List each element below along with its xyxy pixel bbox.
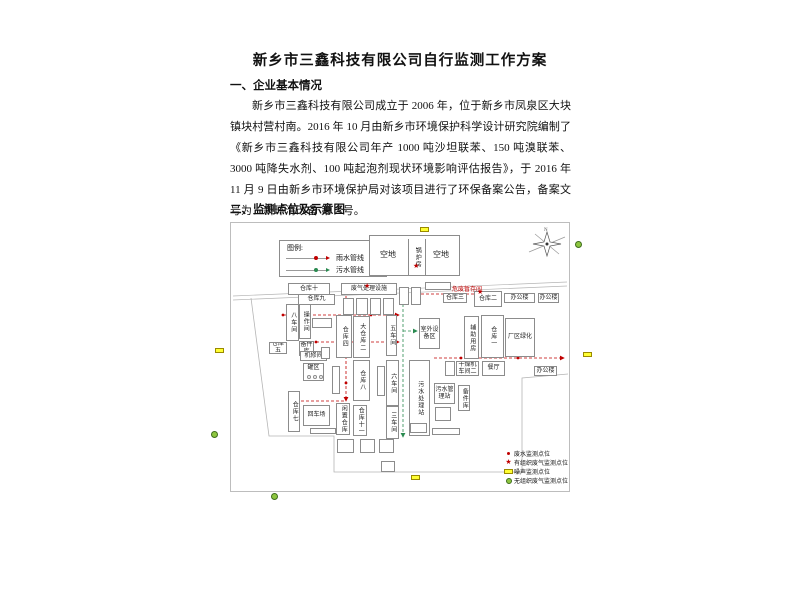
building-canteen: 餐厅 [482, 361, 505, 376]
building-outdoor-equipment-area: 室外设备区 [419, 318, 440, 349]
building-cangku-3: 仓库三 [443, 293, 467, 303]
small-building [432, 428, 460, 435]
fugitive-gas-circle-icon [503, 478, 514, 484]
factory-greening-area: 厂区绿化 [505, 318, 535, 357]
building-idle-warehouse: 闲置仓库 [336, 403, 350, 435]
building-cangku-8: 仓库八 [353, 360, 370, 401]
organized-gas-marker-boiler: ★ [413, 263, 419, 270]
organized-gas-marker-waste-gas: ★ [364, 283, 370, 290]
marker-legend-row-organized-gas: ★ 有组织废气监测点位 [503, 458, 573, 467]
building-office-1: 办公楼 [504, 293, 535, 303]
organized-gas-marker-hazwaste: ★ [477, 289, 483, 296]
rain-line-sample [286, 258, 326, 259]
small-building [310, 428, 336, 434]
building-cangku-7: 仓库七 [288, 391, 300, 432]
section1-heading: 一、企业基本情况 [230, 77, 322, 93]
small-building [410, 423, 427, 433]
building-tank-area: 罐区 [303, 363, 324, 381]
small-building [425, 282, 451, 290]
marker-legend-row-noise: 噪声监测点位 [503, 467, 573, 476]
sewage-line-label: 污水管线 [336, 265, 364, 275]
small-building [360, 439, 375, 453]
building-cangku-5: 仓库五 [269, 342, 287, 354]
small-building [370, 298, 381, 315]
marker-legend-row-fugitive-gas: 无组织废气监测点位 [503, 476, 573, 485]
sewage-pipeline-legend-row: 污水管线 [286, 266, 364, 274]
document-page: 新乡市三鑫科技有限公司自行监测工作方案 一、企业基本情况 新乡市三鑫科技有限公司… [0, 0, 800, 600]
building-sewage-management-station: 污水管理站 [434, 383, 455, 404]
building-turnaround-area: 回车场 [303, 405, 330, 426]
fugitive-gas-marker-southwest [211, 431, 218, 438]
building-workshop-8: 八车间 [286, 304, 299, 341]
noise-monitor-marker-east [583, 352, 592, 357]
small-building [399, 287, 409, 305]
small-building [383, 298, 394, 315]
noise-monitor-marker-north [420, 227, 429, 232]
small-building [312, 318, 332, 328]
building-da-cangku-2: 大仓库二 [353, 316, 370, 358]
marker-legend-label: 噪声监测点位 [514, 467, 550, 476]
rain-line-label: 雨水管线 [336, 253, 364, 263]
marker-legend: 废水监测点位 ★ 有组织废气监测点位 噪声监测点位 无组织废气监测点位 [503, 449, 573, 485]
small-building [321, 347, 330, 359]
noise-monitor-marker-west [215, 348, 224, 353]
marker-legend-label: 废水监测点位 [514, 449, 550, 458]
tank-area-label: 罐区 [307, 365, 319, 372]
building-auxiliary-rooms: 辅助用房 [464, 316, 479, 359]
vacant-land-left-label: 空地 [380, 251, 396, 260]
building-dryer-workshop-2: 干燥机车间二 [456, 361, 479, 376]
wastewater-dot-icon [503, 452, 514, 455]
page-title: 新乡市三鑫科技有限公司自行监测工作方案 [0, 49, 800, 70]
fugitive-gas-marker-south [271, 493, 278, 500]
marker-legend-row-wastewater: 废水监测点位 [503, 449, 573, 458]
building-operation-room: 操作间 [299, 304, 311, 339]
organized-gas-star-icon: ★ [503, 459, 514, 466]
pipeline-legend-title: 图例: [287, 243, 303, 253]
small-building [356, 298, 368, 315]
building-workshop-5: 五车间 [386, 315, 397, 356]
rain-pipeline-legend-row: 雨水管线 [286, 254, 364, 262]
small-building [411, 287, 421, 305]
building-office-2: 办公楼 [538, 293, 559, 303]
sewage-arrow-icon [326, 268, 330, 272]
vacant-land-right-label: 空地 [433, 251, 449, 260]
sewage-line-sample [286, 270, 326, 271]
marker-legend-label: 无组织废气监测点位 [514, 476, 568, 485]
building-cangku-4: 仓库四 [336, 315, 352, 358]
building-cangku-1: 仓库一 [481, 315, 504, 358]
small-building [379, 439, 394, 453]
small-building [332, 366, 340, 394]
building-workshop-6: 六车间 [386, 360, 399, 406]
building-office-3: 办公楼 [534, 366, 557, 376]
small-building [337, 439, 354, 453]
rain-arrow-icon [326, 256, 330, 260]
small-building [381, 461, 395, 472]
fugitive-gas-marker-northeast [575, 241, 582, 248]
marker-legend-label: 有组织废气监测点位 [514, 458, 568, 467]
section2-heading: 二、监测点位及示意图 [230, 201, 345, 217]
small-building [435, 407, 451, 421]
building-spare-parts-store-2: 备件库 [458, 385, 470, 411]
small-building [343, 298, 354, 315]
noise-rect-icon [503, 469, 514, 474]
compass-north-label: N [544, 228, 548, 233]
compass-icon: N [529, 228, 565, 256]
small-building [445, 361, 455, 376]
noise-monitor-marker-south [411, 475, 420, 480]
site-plan-diagram: N 图例: 雨水管线 污水管线 空地 锅炉房 空地 ★ 仓库十 仓库 [230, 222, 570, 492]
small-building [377, 366, 385, 396]
building-cangku-11: 仓库十一 [353, 405, 367, 436]
building-workshop-3: 三车间 [386, 406, 399, 439]
